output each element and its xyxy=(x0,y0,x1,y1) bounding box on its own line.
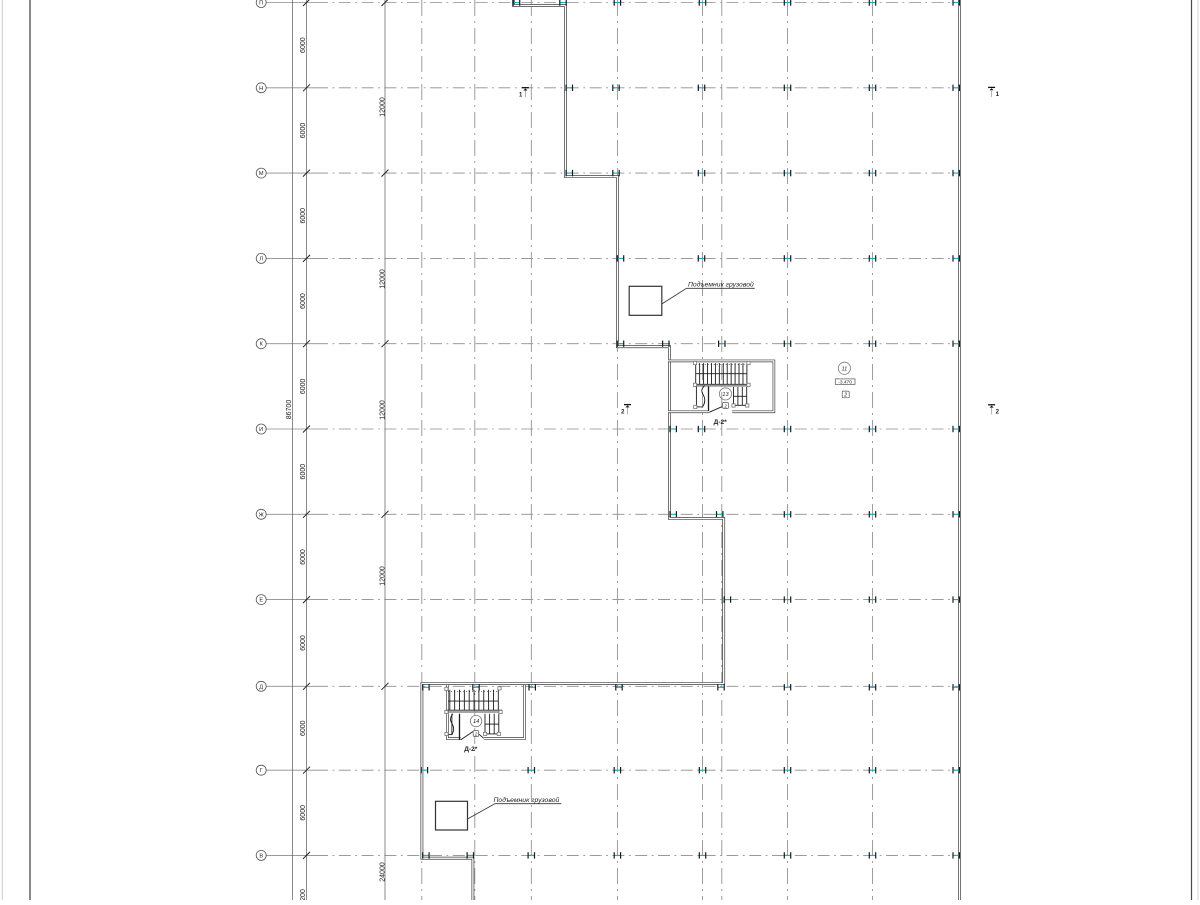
svg-text:6000: 6000 xyxy=(300,293,307,309)
svg-text:2: 2 xyxy=(843,393,847,399)
svg-text:12000: 12000 xyxy=(380,566,387,586)
svg-text:Подъемник грузовой: Подъемник грузовой xyxy=(688,281,754,289)
svg-text:6000: 6000 xyxy=(300,464,307,480)
svg-text:12000: 12000 xyxy=(380,400,387,420)
svg-text:Г: Г xyxy=(260,768,263,774)
svg-text:6000: 6000 xyxy=(300,720,307,736)
svg-text:П: П xyxy=(259,1,263,7)
svg-text:2: 2 xyxy=(723,404,727,409)
svg-text:-3.470: -3.470 xyxy=(838,379,852,385)
svg-text:Е: Е xyxy=(259,598,263,604)
svg-text:В: В xyxy=(259,853,263,859)
svg-text:6000: 6000 xyxy=(300,37,307,53)
svg-text:6000: 6000 xyxy=(300,549,307,565)
svg-text:И: И xyxy=(259,427,263,433)
svg-text:200: 200 xyxy=(300,889,307,900)
svg-text:14: 14 xyxy=(473,719,479,725)
svg-text:86700: 86700 xyxy=(286,400,293,420)
svg-text:12000: 12000 xyxy=(380,97,387,117)
svg-text:М: М xyxy=(259,171,264,177)
svg-text:11: 11 xyxy=(841,366,847,372)
svg-text:6000: 6000 xyxy=(300,635,307,651)
svg-text:13: 13 xyxy=(722,392,729,398)
svg-text:Н: Н xyxy=(259,86,263,92)
svg-text:6000: 6000 xyxy=(300,805,307,821)
svg-text:Д-2*: Д-2* xyxy=(464,746,478,753)
svg-text:Подъемник грузовой: Подъемник грузовой xyxy=(494,796,560,804)
svg-text:Д: Д xyxy=(259,684,263,690)
svg-text:Л: Л xyxy=(259,256,263,262)
svg-text:6000: 6000 xyxy=(300,378,307,394)
svg-text:24000: 24000 xyxy=(380,862,387,882)
svg-text:2: 2 xyxy=(474,732,478,737)
svg-text:6000: 6000 xyxy=(300,123,307,139)
svg-text:Д-2*: Д-2* xyxy=(714,419,728,426)
svg-text:6000: 6000 xyxy=(300,208,307,224)
svg-text:Ж: Ж xyxy=(259,512,265,518)
svg-text:12000: 12000 xyxy=(380,269,387,289)
